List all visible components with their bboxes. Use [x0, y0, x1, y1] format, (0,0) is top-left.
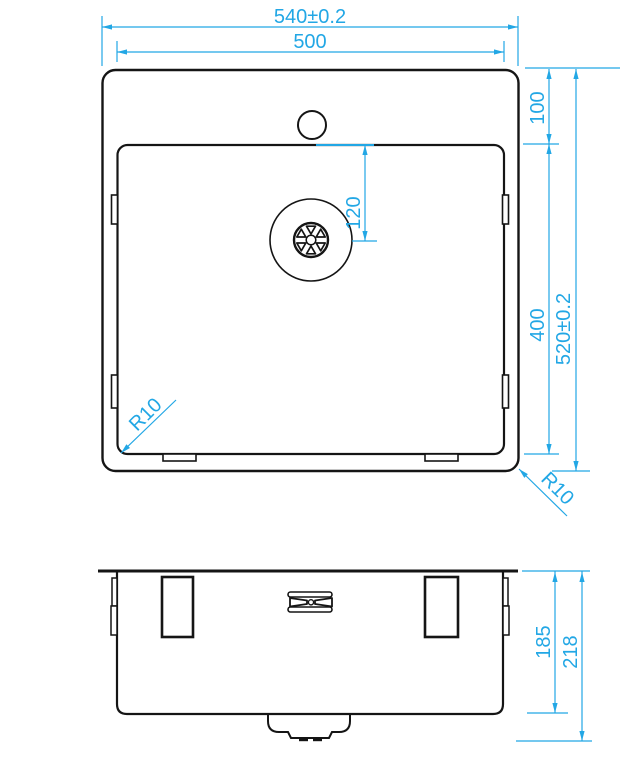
- dim-label-total-depth: 218: [560, 635, 582, 668]
- clip-right-lower: [503, 375, 509, 408]
- clip-bottom-right: [425, 454, 458, 461]
- dim-label-outer-length: 520±0.2: [553, 293, 575, 365]
- sink-bowl-edge: [118, 145, 505, 454]
- clip-right-upper: [503, 195, 509, 224]
- clip-left-lower: [112, 375, 118, 408]
- dim-label-drain-offset: 120: [343, 196, 365, 229]
- drain-recess-circle: [270, 199, 352, 281]
- drawing-svg: 540±0.2 500 100 120 400 520±0.2 R10 R10 …: [0, 0, 624, 760]
- clamp-center-screw: [308, 600, 313, 605]
- clamp-left-wedge: [290, 598, 307, 607]
- clamp-right-wedge: [315, 598, 332, 607]
- tab-left-lower: [111, 606, 117, 635]
- strainer-center-hole: [306, 235, 316, 245]
- center-clamp-fitting: [288, 592, 332, 612]
- bracket-left: [162, 577, 193, 637]
- clamp-top-bar: [288, 592, 332, 597]
- dim-label-bowl-length: 400: [527, 308, 549, 341]
- dim-label-outer-width: 540±0.2: [274, 6, 346, 28]
- tab-right-lower: [503, 606, 509, 635]
- sink-technical-drawing: 540±0.2 500 100 120 400 520±0.2 R10 R10 …: [0, 0, 624, 760]
- faucet-hole: [298, 111, 326, 139]
- dim-label-outer-corner-radius: R10: [536, 468, 578, 510]
- clip-bottom-left: [163, 454, 196, 461]
- clip-left-upper: [112, 195, 118, 224]
- drain-outlet-fitting: [268, 714, 350, 740]
- tab-right-upper: [503, 578, 508, 606]
- dim-label-inner-width: 500: [293, 31, 326, 53]
- drain-outlet-outline: [268, 714, 350, 738]
- strainer-ring: [294, 223, 328, 257]
- strainer-holes: [297, 226, 325, 254]
- drain-assembly: [270, 199, 352, 281]
- front-view: [98, 571, 518, 740]
- tab-left-upper: [112, 578, 117, 606]
- dim-label-rim-to-bowl: 100: [527, 91, 549, 124]
- clamp-bottom-bar: [288, 607, 332, 612]
- dim-label-bowl-depth: 185: [533, 625, 555, 658]
- bracket-right: [425, 577, 458, 637]
- dim-label-bowl-corner-radius: R10: [125, 394, 167, 436]
